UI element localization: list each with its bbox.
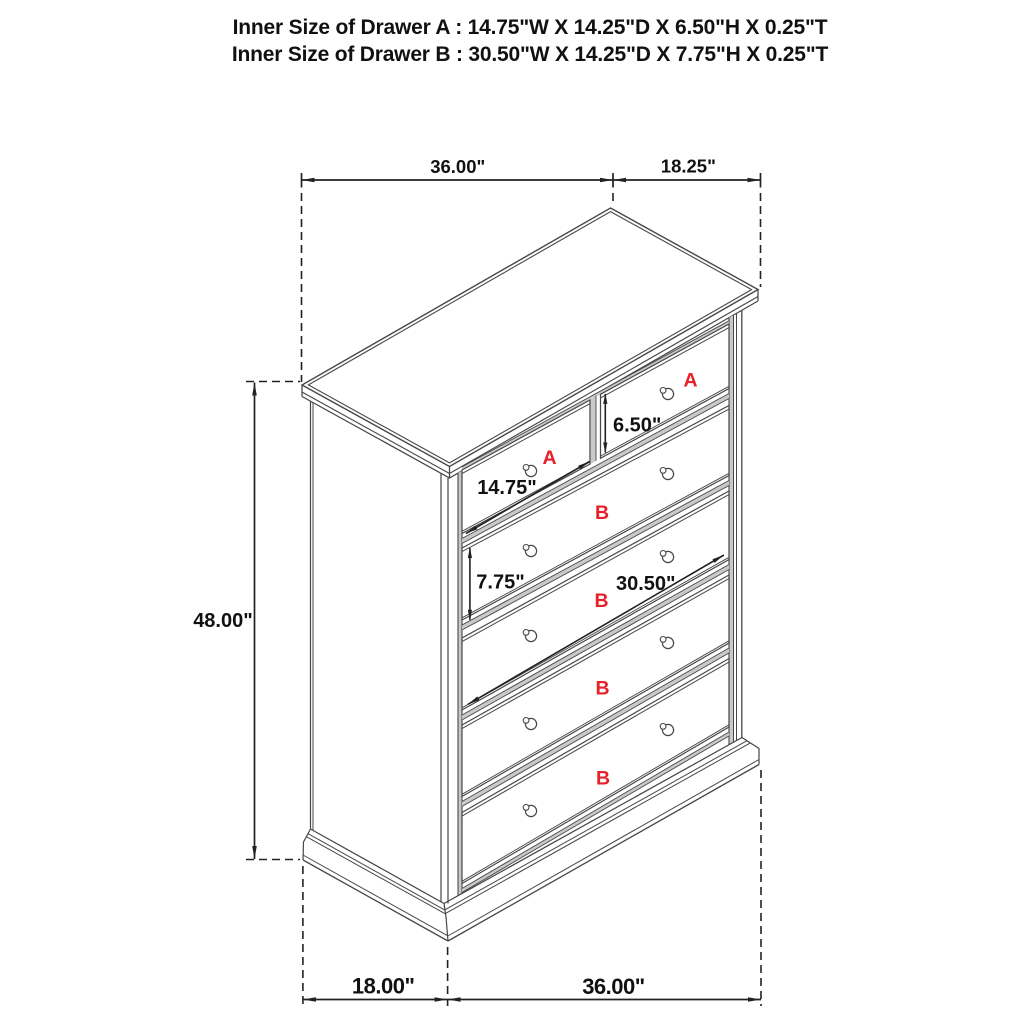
- svg-text:48.00": 48.00": [193, 610, 253, 632]
- svg-text:A: A: [542, 447, 556, 469]
- svg-text:A: A: [683, 370, 697, 392]
- svg-text:30.50": 30.50": [616, 573, 676, 595]
- svg-text:18.00": 18.00": [352, 973, 414, 998]
- svg-text:14.75": 14.75": [477, 477, 537, 499]
- svg-text:18.25": 18.25": [661, 156, 716, 177]
- svg-text:36.00": 36.00": [582, 974, 644, 999]
- svg-text:6.50": 6.50": [613, 415, 661, 437]
- svg-text:7.75": 7.75": [476, 572, 524, 594]
- svg-text:B: B: [595, 502, 609, 524]
- svg-text:B: B: [594, 590, 608, 612]
- svg-text:B: B: [596, 768, 610, 790]
- svg-text:B: B: [595, 678, 609, 700]
- svg-text:36.00": 36.00": [430, 156, 485, 177]
